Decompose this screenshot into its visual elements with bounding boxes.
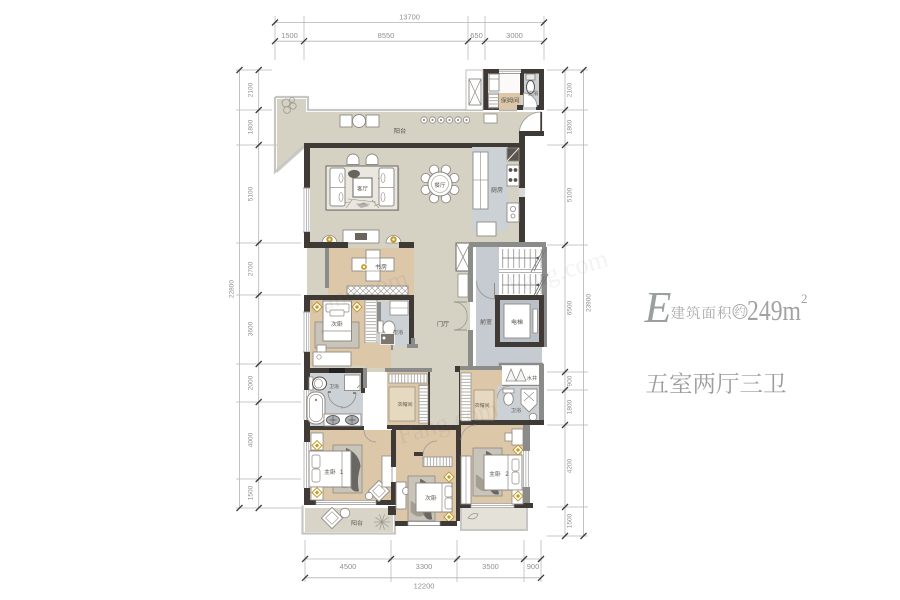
svg-text:2000: 2000	[248, 375, 255, 390]
svg-text:23900: 23900	[586, 294, 593, 312]
svg-text:4500: 4500	[340, 562, 357, 571]
svg-text:2: 2	[505, 471, 509, 478]
svg-text:2100: 2100	[567, 82, 574, 97]
svg-text:650: 650	[470, 31, 483, 40]
svg-text:1500: 1500	[567, 513, 574, 528]
svg-text:3500: 3500	[482, 562, 499, 571]
svg-text:1500: 1500	[248, 485, 255, 500]
svg-text:2: 2	[801, 291, 808, 306]
svg-text:E: E	[644, 283, 672, 332]
svg-text:12200: 12200	[414, 582, 435, 591]
svg-text:249m: 249m	[747, 295, 801, 327]
svg-text:1800: 1800	[567, 119, 574, 134]
svg-text:1800: 1800	[567, 399, 574, 414]
svg-text:900: 900	[567, 375, 574, 386]
svg-text:22800: 22800	[229, 280, 236, 298]
svg-text:1500: 1500	[281, 31, 298, 40]
svg-text:13700: 13700	[399, 13, 420, 22]
svg-text:4000: 4000	[248, 432, 255, 447]
svg-text:8550: 8550	[378, 31, 395, 40]
svg-text:5100: 5100	[567, 187, 574, 202]
svg-text:3600: 3600	[248, 321, 255, 336]
svg-text:1: 1	[340, 469, 344, 476]
svg-text:2700: 2700	[248, 261, 255, 276]
svg-text:5100: 5100	[248, 186, 255, 201]
svg-text:900: 900	[527, 562, 540, 571]
svg-text:1800: 1800	[248, 119, 255, 134]
svg-text:2100: 2100	[248, 82, 255, 97]
svg-text:3000: 3000	[506, 31, 523, 40]
svg-text:6500: 6500	[567, 300, 574, 315]
svg-text:4200: 4200	[567, 458, 574, 473]
svg-text:3300: 3300	[416, 562, 433, 571]
